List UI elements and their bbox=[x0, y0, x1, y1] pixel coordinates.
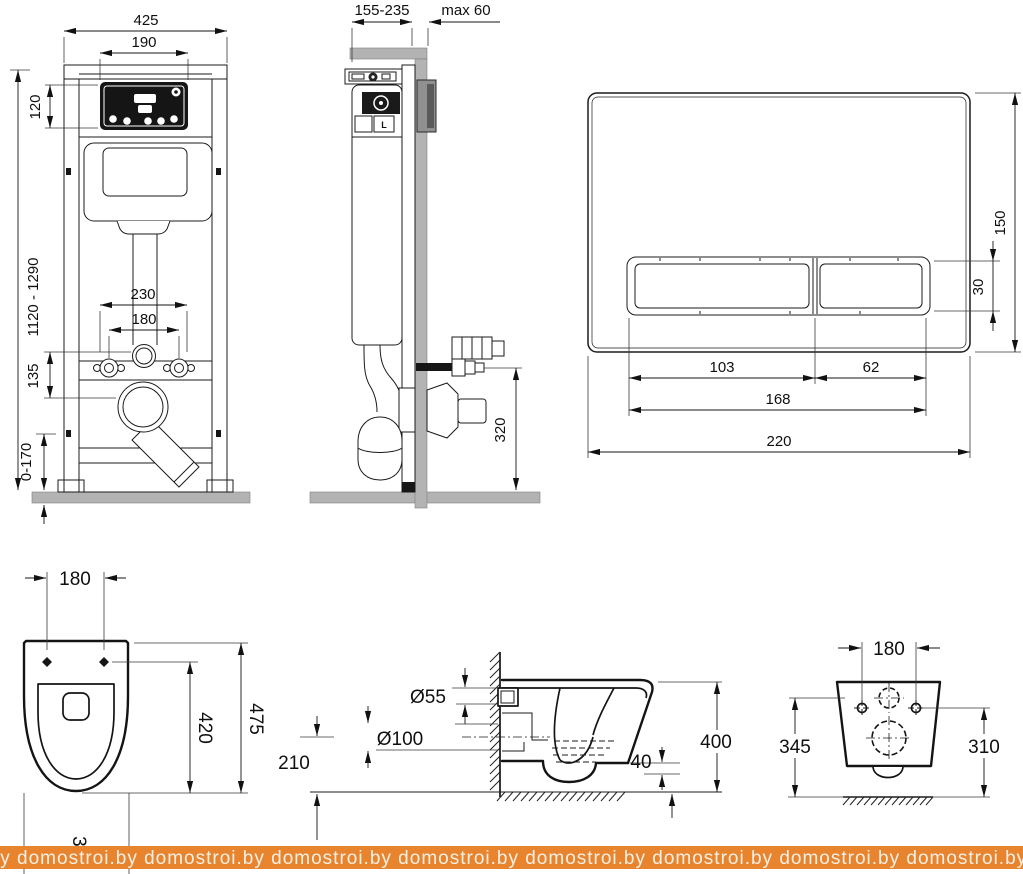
dim-plate-width-label: 220 bbox=[766, 433, 791, 450]
flush-plate-view: 150 30 103 62 168 220 bbox=[588, 93, 1021, 458]
dim-height-label: 400 bbox=[700, 732, 732, 753]
ground-hatching-back bbox=[843, 797, 933, 805]
frame-front-view: 425 190 120 1120 - 1290 230 180 135 0-17… bbox=[10, 12, 250, 524]
dim-bolt-spacing-label: 180 bbox=[131, 311, 156, 328]
dim-frame-width-label: 425 bbox=[133, 12, 158, 29]
watermark-strip: domostroi.by domostroi.by domostroi.by d… bbox=[0, 846, 1023, 869]
drain-outlet bbox=[118, 382, 168, 432]
cistern-side: L bbox=[352, 85, 402, 345]
watermark-text: domostroi.by domostroi.by domostroi.by d… bbox=[0, 848, 1023, 869]
top-slab bbox=[350, 48, 427, 59]
dim-opening-height-label: 120 bbox=[27, 94, 44, 119]
frame-side-view: L bbox=[310, 2, 540, 508]
plate-buttons bbox=[627, 257, 930, 315]
dim-rim-gap-label: 40 bbox=[630, 752, 651, 773]
dim-wall-max-label: max 60 bbox=[441, 2, 490, 19]
bowl-outline-back bbox=[837, 682, 940, 766]
installation-drawing: 425 190 120 1120 - 1290 230 180 135 0-17… bbox=[0, 0, 1023, 874]
dim-outlet-height-label: 210 bbox=[278, 753, 310, 774]
water-inlet-fitting bbox=[416, 337, 504, 376]
tank-mark-label: L bbox=[381, 120, 387, 130]
toilet-top-view: 180 475 420 360 bbox=[24, 569, 266, 874]
dim-bowl-depth-label: 420 bbox=[194, 712, 215, 744]
inspection-box bbox=[100, 82, 188, 130]
dim-back-hole-spacing-label: 180 bbox=[873, 639, 905, 660]
ground-hatching-side bbox=[497, 792, 625, 801]
dim-button-small-label: 62 bbox=[863, 359, 880, 376]
dim-foot-range-label: 0-170 bbox=[18, 443, 35, 481]
dim-depth-range-label: 155-235 bbox=[354, 2, 409, 19]
dim-button-height-label: 30 bbox=[970, 279, 987, 296]
wall-hatching bbox=[490, 652, 500, 790]
flush-plate-box-side bbox=[417, 80, 436, 132]
water-level-dashes bbox=[552, 741, 614, 762]
dim-button-big-label: 103 bbox=[709, 359, 734, 376]
toilet-back-view: 180 345 310 bbox=[779, 639, 1000, 805]
dim-outlet-diameter-label: Ø100 bbox=[377, 729, 423, 750]
bottom-boss bbox=[873, 767, 903, 778]
supply-connection bbox=[133, 345, 156, 368]
dim-inlet-height-label: 320 bbox=[492, 417, 509, 442]
floor-front bbox=[32, 492, 250, 503]
dim-frame-height-label: 1120 - 1290 bbox=[25, 258, 42, 337]
bowl-outline-top bbox=[24, 641, 128, 791]
dim-total-depth-label: 475 bbox=[245, 703, 266, 735]
dim-height-left-label: 345 bbox=[779, 737, 811, 758]
toilet-side-view: Ø55 Ø100 210 40 400 bbox=[278, 652, 732, 840]
wall-bracket bbox=[345, 69, 402, 84]
technical-drawing-page: 425 190 120 1120 - 1290 230 180 135 0-17… bbox=[0, 0, 1023, 874]
dim-inlet-diameter-label: Ø55 bbox=[410, 687, 446, 708]
drain-outlet-fitting bbox=[427, 383, 486, 438]
bowl-profile bbox=[498, 680, 653, 782]
dim-opening-width-label: 190 bbox=[131, 34, 156, 51]
dim-rod-spacing-label: 230 bbox=[130, 286, 155, 303]
dim-axis-offset-label: 135 bbox=[25, 363, 42, 388]
dim-plate-height-label: 150 bbox=[992, 210, 1009, 235]
dim-buttons-total-label: 168 bbox=[765, 391, 790, 408]
dim-height-right-label: 310 bbox=[968, 737, 1000, 758]
dim-hole-spacing-label: 180 bbox=[59, 569, 91, 590]
